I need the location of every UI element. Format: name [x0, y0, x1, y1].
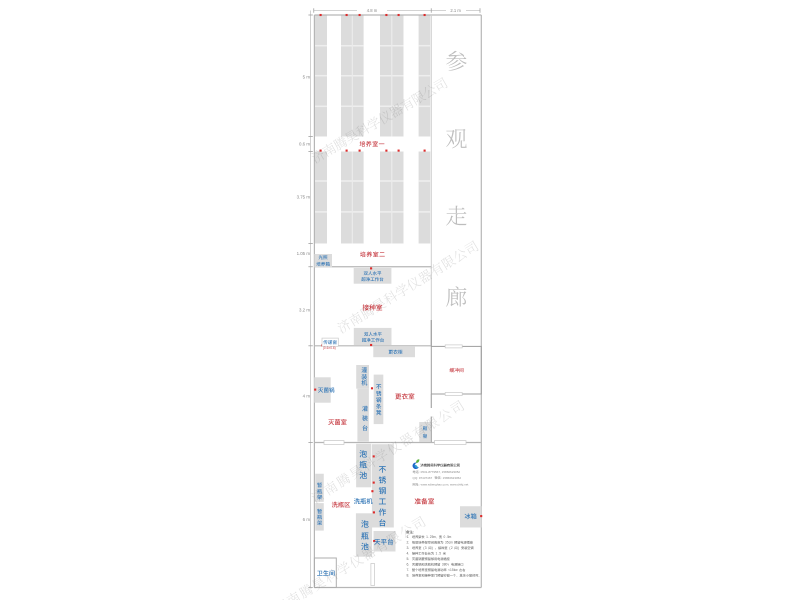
- svg-text:5.: 5.: [407, 557, 410, 561]
- svg-text:,: ,: [456, 574, 457, 578]
- svg-text:0.6 m: 0.6 m: [299, 142, 310, 147]
- svg-text:7.: 7.: [407, 568, 410, 572]
- svg-text:5 m: 5 m: [303, 75, 311, 80]
- svg-text:3.2 m: 3.2 m: [299, 308, 310, 313]
- svg-text:.: .: [479, 574, 480, 578]
- svg-text:: www.sdtenghao.com, www.chtkj: : www.sdtenghao.com, www.chtkj.net: [419, 483, 469, 487]
- svg-text:1.: 1.: [407, 535, 410, 539]
- svg-text:1.05 m: 1.05 m: [297, 251, 311, 256]
- svg-text:2.1 m: 2.1 m: [450, 8, 461, 13]
- svg-text:QQ: 97437467: QQ: 97437467: [413, 476, 433, 480]
- svg-text:5: 5: [439, 552, 441, 556]
- svg-text:2: 2: [451, 546, 453, 550]
- svg-text:8.: 8.: [407, 574, 410, 578]
- svg-text:3: 3: [425, 546, 427, 550]
- svg-text:: 15866623052: : 15866623052: [441, 476, 461, 480]
- svg-text:,: ,: [436, 535, 437, 539]
- svg-text:6.: 6.: [407, 563, 410, 567]
- svg-text:): ): [432, 546, 433, 550]
- svg-text:(0.6×0.6): (0.6×0.6): [323, 346, 336, 350]
- svg-text:4.: 4.: [407, 552, 410, 556]
- svg-text:m: m: [450, 541, 453, 545]
- svg-text:4 m: 4 m: [303, 394, 311, 399]
- svg-text:): ): [458, 546, 459, 550]
- svg-text:3.75 m: 3.75 m: [297, 195, 311, 200]
- svg-text:: 0531-8779567, 15866623052: : 0531-8779567, 15866623052: [419, 470, 460, 474]
- svg-text:2.: 2.: [407, 541, 410, 545]
- svg-text:4.8 m: 4.8 m: [367, 8, 378, 13]
- svg-text:m: m: [449, 535, 452, 539]
- svg-text:6 m: 6 m: [303, 517, 311, 522]
- svg-text:3.: 3.: [407, 546, 410, 550]
